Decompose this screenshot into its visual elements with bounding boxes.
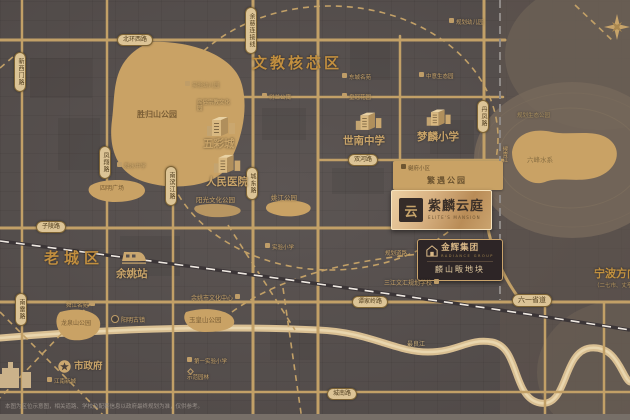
park-fanyu: 繁遇公园 <box>427 175 503 186</box>
park-yangguang: 阳光文化公园 <box>196 197 235 204</box>
menglin-school-building-icon <box>427 110 451 126</box>
ningbo-direction-sub: （二七市、丈亭方向） <box>594 283 630 289</box>
poi-culture-center: 余姚市文化中心 <box>191 294 240 303</box>
estate-icon <box>47 377 52 382</box>
road-pill-danfeng: 丹凤路 <box>477 100 489 133</box>
road-pill-ziling: 子陵路 <box>36 221 66 233</box>
road-pill-fengxiang: 凤翔路 <box>99 146 111 179</box>
poi-wucai-city: 五彩城 <box>203 138 235 150</box>
park-yaojiang: 姚江公园 <box>271 195 297 202</box>
estate-icon <box>419 72 424 77</box>
park-fanyu-band: 樾府小区 繁遇公园 <box>393 161 503 190</box>
poi-menglin-school: 梦麟小学 <box>417 131 459 143</box>
water-houqing: 候青江 <box>501 146 507 163</box>
road-pill-nanlei: 南雷路 <box>15 293 27 326</box>
project-card: 云 紫麟云庭 ELITE'S MANSION <box>391 190 492 230</box>
estate-icon <box>265 243 270 248</box>
label-planned-kindergarten: 规划幼儿园 <box>449 18 484 26</box>
label-dongcheng: 东城名苑 <box>342 73 371 81</box>
estate-icon <box>449 18 454 23</box>
park-longquan: 龙泉山公园 <box>61 321 91 328</box>
road-pill-nanbinjiang: 南滨江路 <box>165 166 177 206</box>
estate-icon <box>235 294 240 299</box>
park-yuhuang: 玉皇山公园 <box>189 317 222 324</box>
road-pill-beihuanxi: 北环西路 <box>117 34 153 46</box>
developer-badge: 金辉集团 RADIANCE GROUP 麟山畈地块 <box>417 239 503 281</box>
label-yuefu: 樾府小区 <box>401 164 503 173</box>
water-liufeng: 六峰水系 <box>527 157 553 164</box>
poi-city-gov: 市政府 <box>74 362 103 373</box>
road-pill-liuyi: 六一省道 <box>512 294 552 307</box>
core-zone-title: 文教核芯区 <box>252 55 342 72</box>
estate-icon <box>342 93 347 98</box>
planned-school-label: 三江文汇规划学校 <box>384 279 439 288</box>
developer-name-en: RADIANCE GROUP <box>441 254 494 258</box>
poi-yuyao-station: 余姚站 <box>116 268 148 280</box>
label-shunjiang: 舜江名苑 <box>66 301 95 309</box>
old-town-title: 老城区 <box>44 250 104 267</box>
water-zuiliang: 最良江 <box>407 342 425 349</box>
estate-icon <box>187 357 192 362</box>
road-pill-chengnan: 城南路 <box>327 388 357 400</box>
label-huangguan: 皇冠花园 <box>342 93 371 101</box>
park-siming-square: 四明广场 <box>100 186 124 193</box>
poi-people-hospital: 人民医院 <box>206 176 248 188</box>
estate-icon <box>342 73 347 78</box>
poi-yangming-town: 阳明古镇 <box>111 315 145 325</box>
location-map: 文教核芯区 老城区 宁波方向 （二七市、丈亭方向） 北环西路 余慈连接线 新西门… <box>0 0 630 420</box>
ningbo-direction-label: 宁波方向 <box>594 268 630 281</box>
label-shifan-garden: 示范园林 <box>187 368 209 381</box>
estate-icon <box>401 164 406 169</box>
road-pill-shuanghe: 双河路 <box>348 154 378 166</box>
project-name: 紫麟云庭 <box>428 200 484 213</box>
disclaimer-text: 本图为区位示意图，相关道路、学校及配套信息以政府最终规划为准，仅供参考。 <box>5 402 203 410</box>
road-pill-yuci: 余慈连接线 <box>245 7 257 54</box>
label-planned-road: 规划道路 <box>385 251 407 257</box>
road-pill-tanjialing: 谭家岭路 <box>352 296 388 308</box>
label-first-exp-primary: 第一实验小学 <box>187 357 227 365</box>
diamond-icon <box>187 368 194 375</box>
label-zhongyi-park: 中意生态园 <box>419 72 454 80</box>
shinan-school-building-icon <box>356 113 382 130</box>
developer-name: 金辉集团 <box>441 244 494 253</box>
gov-star-icon <box>58 360 70 372</box>
house-icon <box>426 245 438 257</box>
bottom-strip <box>0 414 630 420</box>
project-name-en: ELITE'S MANSION <box>428 215 484 220</box>
label-exp-primary: 实验小学 <box>265 243 294 251</box>
plot-name: 麟山畈地块 <box>435 264 485 275</box>
landmark-icon <box>111 315 119 323</box>
estate-icon <box>117 162 122 167</box>
road-pill-xinximen: 新西门路 <box>14 52 26 92</box>
estate-icon <box>434 279 439 284</box>
label-planned-eco-park: 规划生态公园 <box>517 113 550 119</box>
estate-icon <box>90 301 95 306</box>
label-jiangnan: 江南新城 <box>47 377 76 385</box>
label-minsu: 民俗宗教文化园 <box>197 100 231 113</box>
park-shenggui: 胜归山公园 <box>137 110 177 119</box>
label-shulan: 树兰公寓 <box>262 93 291 101</box>
estate-icon <box>262 93 267 98</box>
estate-icon <box>185 81 190 86</box>
poi-shinan-school: 世南中学 <box>343 135 385 147</box>
project-logo: 云 <box>399 198 423 222</box>
label-exp-kindergarten: 实验幼儿园 <box>185 81 220 89</box>
label-shunshui-school: 舜水中学 <box>117 162 146 170</box>
